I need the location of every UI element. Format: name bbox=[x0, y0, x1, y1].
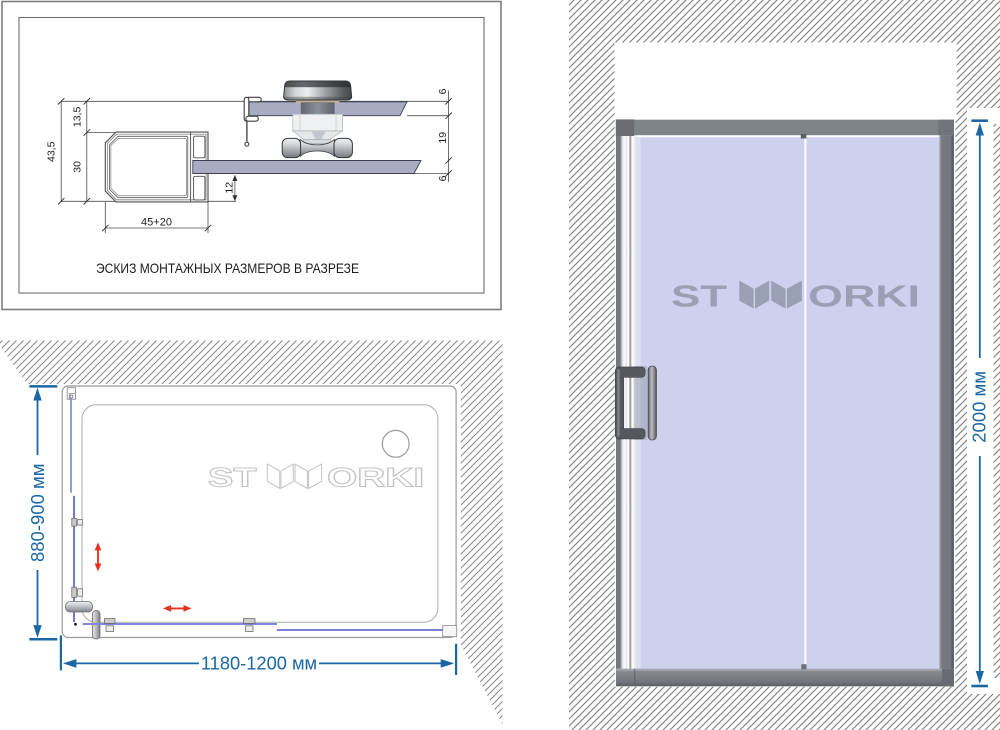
svg-text:2000 мм: 2000 мм bbox=[968, 371, 989, 443]
svg-text:30: 30 bbox=[71, 161, 83, 173]
svg-text:13,5: 13,5 bbox=[71, 107, 83, 128]
svg-text:12: 12 bbox=[224, 182, 236, 194]
svg-text:880-900 мм: 880-900 мм bbox=[27, 464, 48, 562]
svg-text:6: 6 bbox=[437, 88, 449, 94]
svg-text:43,5: 43,5 bbox=[46, 141, 58, 162]
svg-text:45+20: 45+20 bbox=[141, 217, 172, 229]
svg-text:19: 19 bbox=[437, 132, 449, 144]
svg-text:1180-1200 мм: 1180-1200 мм bbox=[201, 653, 317, 674]
svg-text:6: 6 bbox=[437, 175, 449, 181]
svg-text:ЭСКИЗ МОНТАЖНЫХ РАЗМЕРОВ В РАЗ: ЭСКИЗ МОНТАЖНЫХ РАЗМЕРОВ В РАЗРЕЗЕ bbox=[96, 261, 359, 276]
